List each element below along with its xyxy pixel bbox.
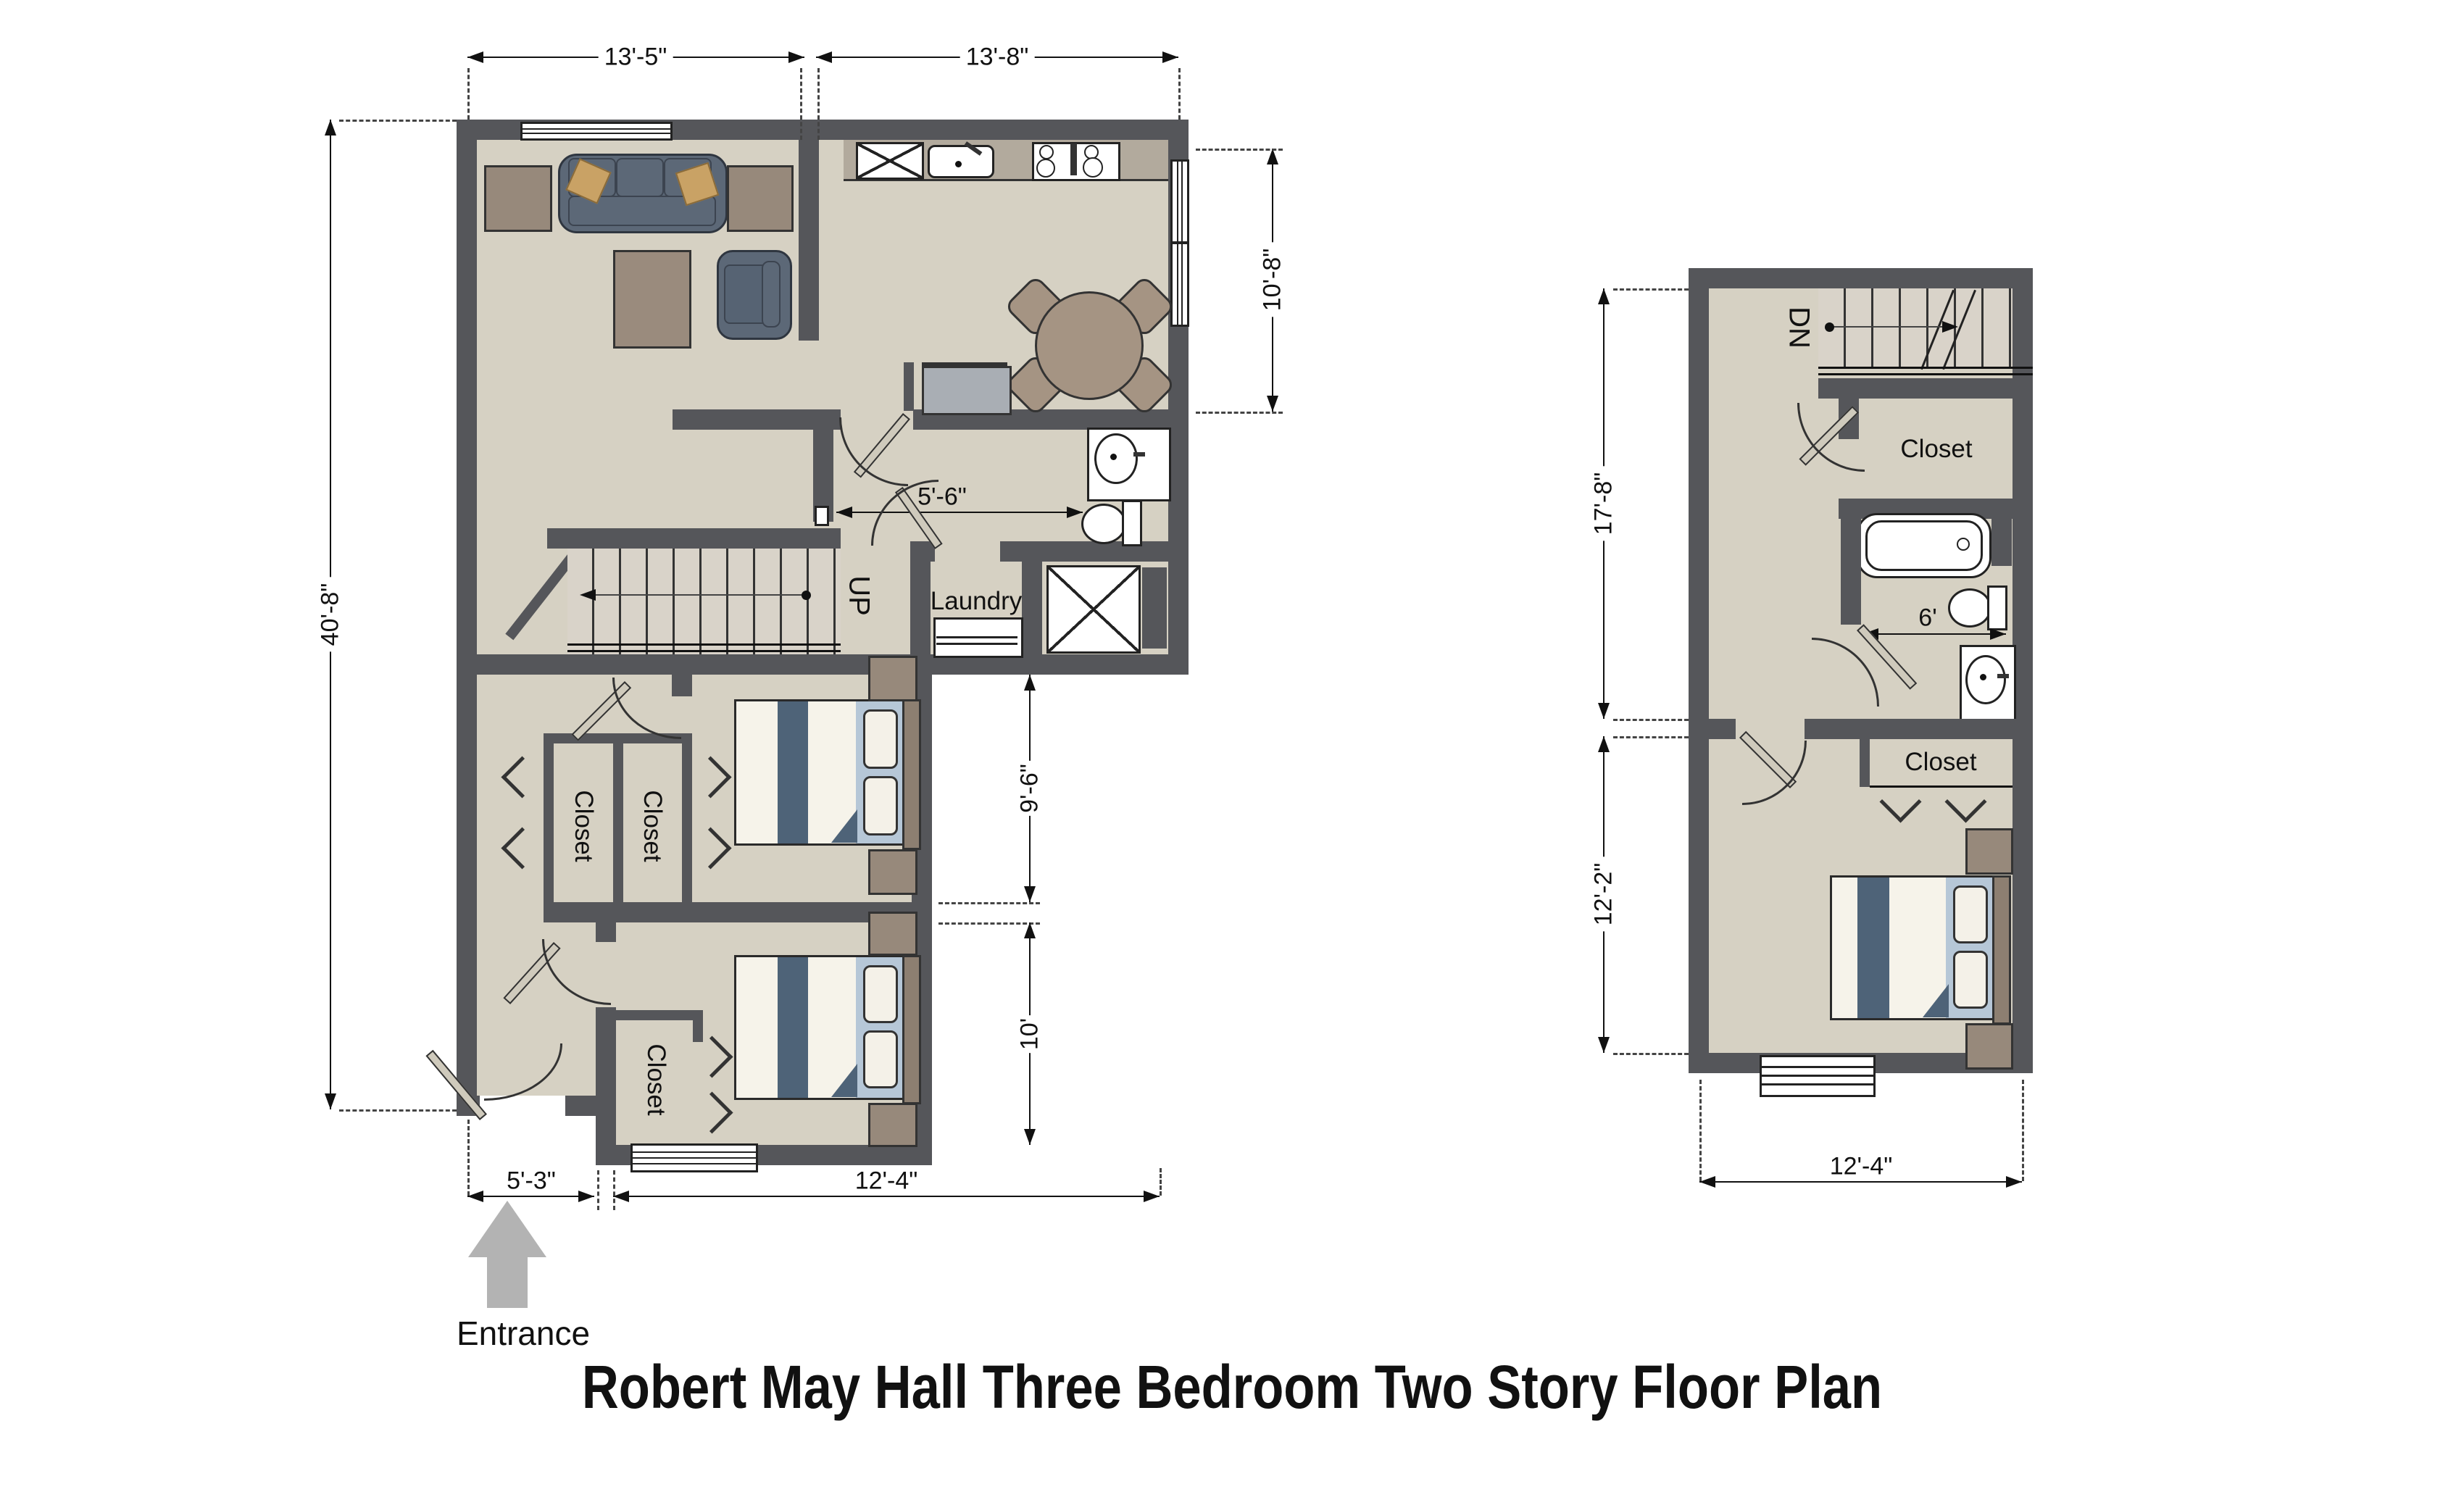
ff-dim-bottomright: 12'-4" — [849, 1167, 924, 1196]
sf-dim-upper-arrow-d — [1598, 703, 1610, 719]
ff-dim-bed1-arrow-u — [1024, 675, 1036, 691]
sf-ext-mid-b — [1613, 736, 1689, 738]
bed3-pillow-1 — [1953, 885, 1988, 943]
sf-dim-lower: 12'-2" — [1590, 857, 1618, 932]
ff-wall-bedrooms-divider — [544, 902, 912, 922]
water-heater-icon — [1046, 565, 1141, 654]
ff-ext-bm-b — [613, 1170, 615, 1210]
sf-closet2-left-stub — [1860, 739, 1870, 787]
cp-divider — [613, 743, 623, 922]
sf-wall-below-stairs — [1818, 378, 2033, 399]
ff-dim-bed2-arrow-u — [1024, 922, 1036, 938]
entrance-label: Entrance — [457, 1314, 590, 1353]
ff-bath-sink-drain — [1110, 454, 1117, 460]
sf-ext-bottom-l — [1699, 1080, 1702, 1181]
sf-dim-bath-arrow-r — [1990, 628, 2006, 640]
ff-wall-bedroom2-left-b — [596, 1007, 616, 1145]
ff-dim-kitchen-arrow-d — [1267, 396, 1278, 412]
ff-stairs-rail — [587, 594, 808, 596]
sf-bath-left-wall — [1841, 509, 1861, 625]
kitchen-sink-drain — [955, 161, 962, 167]
ff-door-stop — [815, 506, 829, 526]
sf-dim-lower-arrow-u — [1598, 736, 1610, 752]
c3-right-stub — [693, 1010, 703, 1042]
armchair-back — [762, 261, 781, 328]
bed3-fold — [1923, 984, 1949, 1017]
sf-bath-shelf — [1991, 511, 2012, 566]
ff-dim-left-arrow-u — [325, 120, 336, 136]
ff-ext-beddiv-a — [938, 902, 1040, 904]
sf-dim-bottom-arrow-r — [2006, 1176, 2022, 1188]
ff-dim-topleft-arrow-r — [788, 51, 804, 63]
ff-stairs-bottom-line1 — [567, 643, 841, 646]
page-title: Robert May Hall Three Bedroom Two Story … — [582, 1352, 1882, 1422]
bed1-headboard — [902, 699, 921, 850]
sf-dim-bath-line — [1862, 633, 2006, 635]
c3-top — [616, 1010, 703, 1020]
entrance-arrow-shaft — [487, 1256, 528, 1308]
sf-wall-below-bath-b — [1805, 719, 2033, 739]
ff-dim-topright: 13'-8" — [960, 43, 1035, 72]
sf-wall-below-bath-a — [1709, 719, 1736, 739]
ff-dim-bottomright-line — [613, 1196, 1160, 1197]
washer-line1 — [936, 636, 1017, 638]
bed1-fold — [831, 809, 857, 843]
desk — [922, 366, 1012, 415]
ff-ext-kitchen-top — [1196, 149, 1283, 151]
dining-table — [1035, 291, 1144, 400]
bed-1 — [734, 699, 919, 846]
ff-up-label: UP — [843, 575, 875, 616]
sf-dn-label: DN — [1783, 307, 1815, 349]
ff-dim-br-arrow-r — [1144, 1191, 1160, 1202]
ff-stairs-bottom-line2 — [567, 650, 841, 652]
nightstand-2a — [868, 912, 917, 956]
ff-ext-kitchen-bottom — [1196, 412, 1283, 414]
ff-dim-bath-arrow-l — [836, 507, 852, 518]
closet-right-label: Closet — [638, 790, 667, 862]
sf-stairs-bottom-line1 — [1818, 367, 2033, 369]
sf-ext-mid-a — [1613, 719, 1689, 721]
bed-2 — [734, 955, 919, 1100]
ff-stairs-rail-dot — [802, 591, 811, 600]
ff-ext-left-bottom — [339, 1109, 457, 1112]
bathtub-drain — [1957, 538, 1970, 551]
bed1-stripe — [778, 701, 808, 843]
ff-laundry-label: Laundry — [931, 587, 1022, 616]
sf-closet-lower-label: Closet — [1905, 748, 1976, 777]
washer-line2 — [936, 643, 1017, 645]
ff-wall-laundry-right — [1022, 562, 1042, 654]
ff-ext-topright — [1178, 68, 1181, 120]
cp-right — [682, 743, 692, 922]
ff-dim-bath-line — [836, 512, 1083, 513]
ff-ext-bl — [467, 1120, 470, 1196]
bed2-fold — [831, 1064, 857, 1097]
closet-left-label: Closet — [569, 790, 598, 862]
nightstand-1a — [868, 656, 917, 701]
ff-stairs-top-wall — [547, 528, 841, 549]
ff-dim-bottomleft-line — [467, 1196, 594, 1197]
ff-wall-left — [457, 120, 477, 1116]
living-window — [520, 122, 673, 141]
closet-bottom-label: Closet — [641, 1043, 670, 1115]
ff-dim-topright-arrow-l — [816, 51, 832, 63]
sf-dim-bottom-line — [1699, 1181, 2022, 1183]
sf-closet2-rail — [1870, 785, 2013, 788]
sf-dim-bath: 6' — [1915, 604, 1939, 633]
bed1-pillow-1 — [863, 709, 898, 769]
sf-stairs-bottom-line2 — [1818, 373, 2033, 375]
sf-dim-upper-arrow-u — [1598, 288, 1610, 304]
ff-dim-bl-arrow-r — [578, 1191, 594, 1202]
bed2-headboard — [902, 955, 921, 1104]
ff-dim-bed1-arrow-d — [1024, 886, 1036, 902]
bed2-stripe — [778, 957, 808, 1098]
ff-dim-bottomleft: 5'-3" — [501, 1167, 562, 1196]
sf-dim-bottom-arrow-l — [1699, 1176, 1715, 1188]
sf-stairs-rail-dot — [1825, 322, 1834, 332]
burner-1 — [1039, 145, 1054, 159]
ff-wall-dining-bottom-a — [673, 409, 841, 430]
bed3-headboard — [1992, 875, 2011, 1025]
bed2-pillow-1 — [863, 965, 898, 1023]
sf-bedroom-window — [1760, 1055, 1876, 1097]
bed2-pillow-2 — [863, 1030, 898, 1088]
ff-dim-topleft: 13'-5" — [599, 43, 673, 72]
armchair-cushion — [724, 264, 767, 324]
sf-toilet-bowl — [1948, 588, 1991, 628]
side-table-left — [484, 165, 552, 232]
ff-ext-left-top — [339, 120, 457, 122]
ff-wall-living-kitchen-divider — [799, 140, 819, 341]
sf-ext-bottom — [1613, 1053, 1689, 1055]
sf-sink — [1965, 655, 2006, 704]
refrigerator-icon — [856, 142, 924, 180]
sf-ext-top — [1613, 288, 1689, 291]
entrance-arrow-icon — [468, 1201, 546, 1257]
sf-ext-bottom-r — [2022, 1080, 2024, 1181]
ff-dim-left: 40'-8" — [317, 578, 345, 652]
ff-stairs-arrow — [580, 589, 596, 601]
ff-dim-left-arrow-d — [325, 1093, 336, 1109]
ff-dim-bed2-arrow-d — [1024, 1129, 1036, 1145]
ff-mech-dark-box — [1142, 567, 1167, 649]
ff-ext-topleft — [467, 68, 470, 120]
bed3-stripe — [1857, 878, 1889, 1018]
sf-wall-left — [1689, 268, 1709, 1073]
ff-dim-br-arrow-l — [613, 1191, 629, 1202]
ff-ext-topmid-b — [817, 68, 820, 140]
burner-4 — [1083, 157, 1103, 178]
ff-ext-br — [1160, 1168, 1162, 1196]
nightstand-1b — [868, 849, 917, 895]
side-table-right — [727, 165, 794, 232]
ff-dim-kitchen-arrow-u — [1267, 149, 1278, 164]
dining-window — [1170, 159, 1189, 327]
ff-wall-mid-band — [477, 654, 1168, 675]
burner-2 — [1036, 159, 1055, 178]
cp-left — [544, 733, 554, 922]
ff-dim-bath-arrow-r — [1067, 507, 1083, 518]
sf-stairs-arrow — [1942, 321, 1958, 333]
floor-plan-canvas: UP 5'-6" — [0, 0, 2464, 1492]
ff-toilet-bowl — [1081, 504, 1126, 544]
ff-stairs-treads — [567, 549, 841, 654]
nightstand-3b — [1965, 1023, 2013, 1070]
ff-dim-bed1: 9'-6" — [1016, 761, 1044, 816]
ff-dim-topright-arrow-r — [1162, 51, 1178, 63]
nightstand-3a — [1965, 828, 2013, 875]
ff-toilet-tank — [1122, 500, 1142, 546]
sf-stairs-treads — [1818, 288, 2013, 367]
ff-dim-bed2: 10' — [1016, 1015, 1044, 1053]
sofa-cushion-2 — [616, 158, 664, 197]
sf-dim-bottom: 12'-4" — [1824, 1153, 1899, 1181]
ff-dim-topleft-arrow-l — [467, 51, 483, 63]
bed3-pillow-2 — [1953, 951, 1988, 1009]
sf-dim-upper: 17'-8" — [1590, 467, 1618, 541]
sf-sink-drain — [1980, 674, 1986, 680]
nightstand-2b — [868, 1103, 917, 1147]
ff-ext-topmid-a — [800, 68, 802, 140]
sf-closet-upper-label: Closet — [1900, 435, 1972, 464]
ff-ext-bm-a — [597, 1170, 599, 1210]
stove-divider — [1070, 143, 1077, 175]
ff-dim-kitchen: 10'-8" — [1259, 243, 1287, 317]
sf-toilet-tank — [1987, 585, 2007, 630]
sf-faucet-icon — [1997, 674, 2009, 678]
bed-3 — [1830, 875, 2009, 1020]
bedroom2-window — [630, 1143, 758, 1172]
sf-dim-lower-arrow-d — [1598, 1037, 1610, 1053]
ff-desk-wall-stub — [904, 362, 914, 411]
bed1-pillow-2 — [863, 776, 898, 835]
ff-wall-laundry-top-b — [1000, 541, 1168, 562]
ff-bath-faucet-icon — [1133, 452, 1145, 457]
coffee-table — [613, 250, 691, 349]
sf-stairs-rail — [1832, 326, 1952, 328]
sf-wall-top — [1689, 268, 2033, 288]
